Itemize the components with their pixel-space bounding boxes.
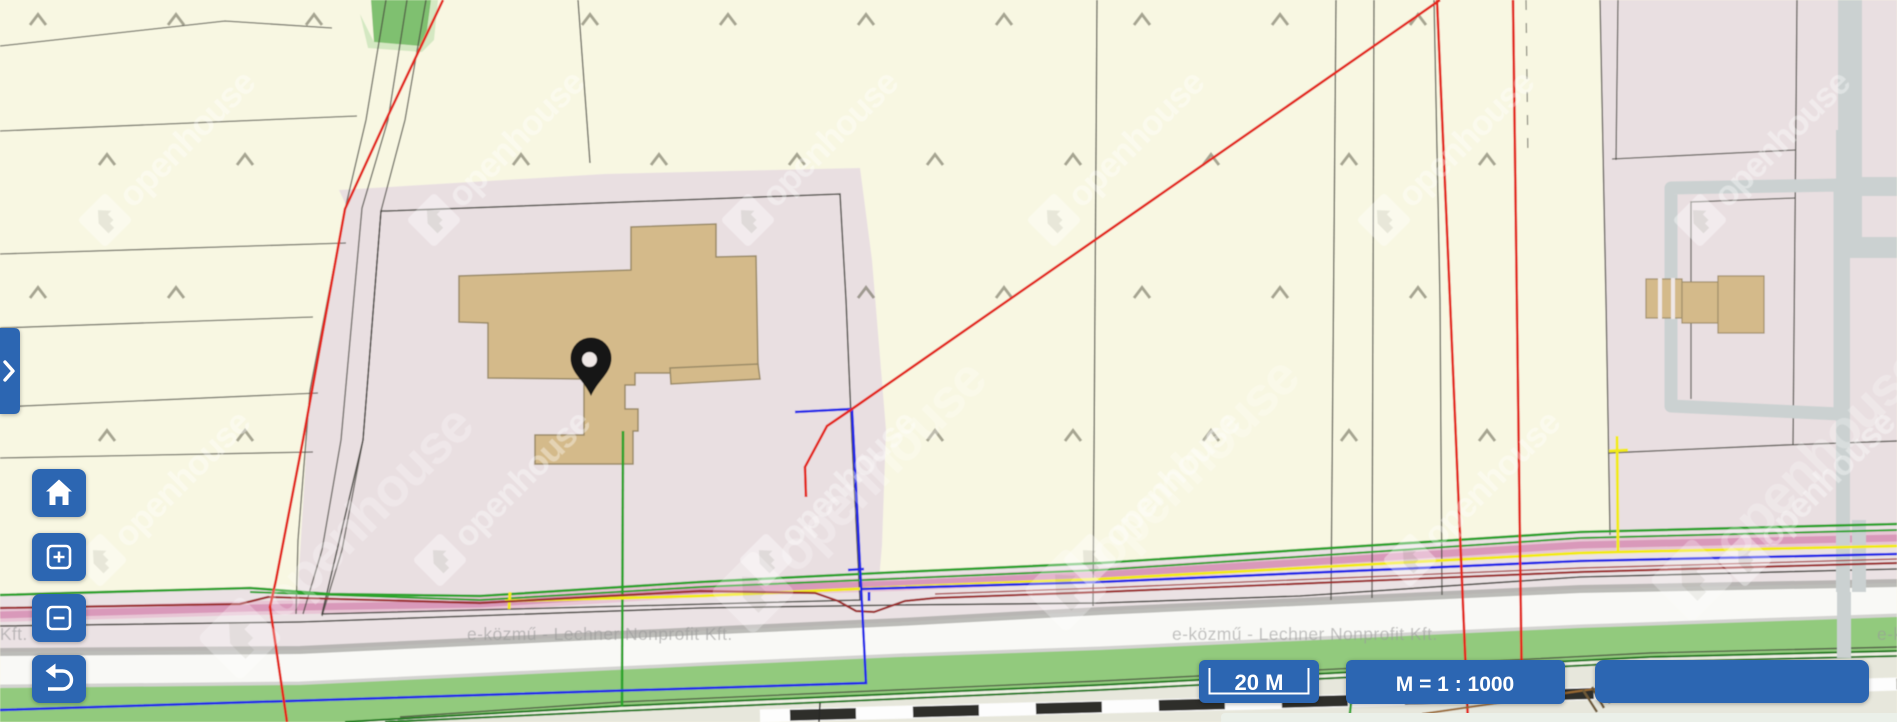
svg-text:e-közmű - Lechner Nonprofit K: e-közmű - Lechner Nonprofit Kft. [467, 624, 733, 644]
svg-text:e-közmű - Lechner Nonprofit K: e-közmű - Lechner Nonprofit Kft. [1172, 624, 1438, 644]
svg-text:e-közmű - Lechner Nonprofit K: e-közmű - Lechner Nonprofit Kft. [0, 624, 28, 644]
svg-text:e-közmű - Lechner Nonprofit K: e-közmű - Lechner Nonprofit Kft. [1877, 624, 1897, 644]
svg-text:20 M: 20 M [1235, 670, 1284, 695]
svg-text:M = 1 : 1000: M = 1 : 1000 [1396, 673, 1514, 696]
